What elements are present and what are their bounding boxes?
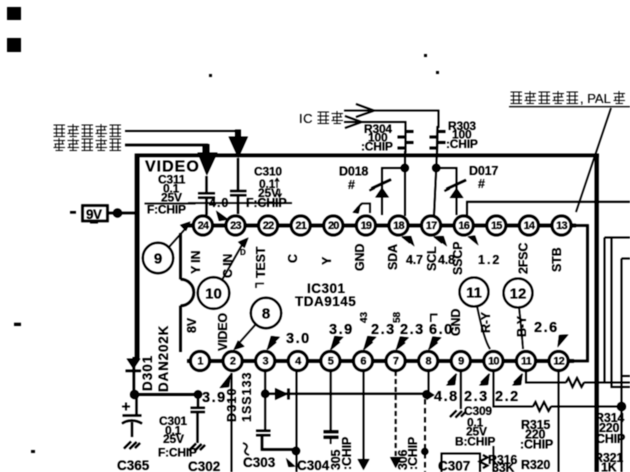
svg-text:12: 12 (553, 356, 564, 368)
svg-text:D: D (240, 248, 246, 257)
svg-text:20: 20 (328, 220, 339, 232)
svg-text:13: 13 (556, 220, 567, 232)
svg-text:2.3: 2.3 (464, 389, 489, 405)
svg-text:F:CHIP: F:CHIP (158, 446, 197, 460)
svg-text:2.3: 2.3 (371, 322, 396, 338)
svg-text:3.9: 3.9 (202, 390, 227, 406)
svg-text:D017: D017 (469, 164, 498, 178)
svg-text:8: 8 (262, 306, 270, 323)
svg-text:3: 3 (263, 356, 269, 368)
svg-text:12: 12 (510, 286, 527, 303)
svg-text:#: # (478, 177, 485, 191)
svg-text:2: 2 (230, 356, 236, 368)
svg-text:9: 9 (154, 251, 162, 268)
svg-text:10: 10 (488, 356, 499, 368)
svg-text:TEST: TEST (254, 246, 268, 278)
svg-text::CHIP: :CHIP (361, 140, 393, 154)
svg-text:SDA: SDA (386, 244, 400, 270)
svg-text:R-Y: R-Y (479, 311, 493, 333)
svg-text:D018: D018 (339, 165, 368, 179)
svg-text:14: 14 (524, 220, 536, 232)
svg-text:C365: C365 (117, 458, 150, 472)
svg-text:C IN: C IN (221, 254, 235, 278)
svg-text:Y IN: Y IN (189, 251, 203, 274)
svg-text:43: 43 (359, 311, 370, 323)
svg-text:, PAL: , PAL (580, 91, 611, 106)
svg-text:SSCP: SSCP (451, 242, 465, 275)
svg-text:1K: 1K (601, 461, 617, 472)
svg-text::CHIP: :CHIP (406, 437, 420, 470)
svg-text:6.0: 6.0 (429, 322, 454, 338)
svg-text:VIDEO: VIDEO (216, 313, 230, 351)
svg-text:9V: 9V (86, 207, 102, 222)
svg-text:16: 16 (458, 220, 469, 232)
svg-text:5: 5 (328, 356, 334, 368)
svg-text:3.9: 3.9 (329, 322, 354, 338)
svg-text:6: 6 (360, 356, 366, 368)
svg-text:25V: 25V (163, 432, 184, 446)
svg-text:F:CHIP: F:CHIP (147, 203, 186, 217)
svg-text:4.7: 4.7 (406, 253, 423, 267)
svg-text:17: 17 (426, 220, 437, 232)
svg-text:8V: 8V (185, 317, 199, 333)
svg-text:C303: C303 (243, 455, 276, 470)
svg-text:19: 19 (361, 220, 372, 232)
svg-text:#: # (348, 178, 355, 192)
svg-text:3.0: 3.0 (286, 331, 311, 347)
svg-text:33K: 33K (492, 461, 515, 472)
svg-text:R320: R320 (521, 458, 550, 472)
svg-text:SCL: SCL (425, 246, 439, 271)
svg-text:9: 9 (458, 356, 464, 368)
svg-text:22: 22 (263, 220, 274, 232)
svg-text::CHIP: :CHIP (446, 137, 478, 151)
svg-text:GND: GND (353, 244, 367, 271)
svg-text:24: 24 (198, 220, 210, 232)
svg-text:D301: D301 (140, 355, 155, 391)
svg-text:IC: IC (299, 111, 313, 126)
svg-text:4.8: 4.8 (434, 389, 459, 405)
svg-text:18: 18 (393, 220, 404, 232)
svg-text:B-Y: B-Y (515, 315, 529, 337)
svg-text:1.2: 1.2 (478, 253, 501, 267)
svg-text:2FSC: 2FSC (517, 243, 531, 274)
svg-text:15: 15 (491, 220, 502, 232)
svg-text:2.2: 2.2 (495, 389, 520, 405)
svg-text:21: 21 (295, 220, 306, 232)
svg-text:8: 8 (426, 356, 432, 368)
svg-text:TDA9145: TDA9145 (295, 294, 356, 309)
svg-text:B:CHIP: B:CHIP (455, 435, 495, 449)
svg-text:2.6: 2.6 (534, 320, 559, 336)
svg-text:C307: C307 (438, 459, 470, 472)
svg-text:1SS133: 1SS133 (240, 372, 254, 422)
svg-text:C304: C304 (297, 458, 330, 472)
svg-text::CHIP: :CHIP (520, 438, 553, 452)
svg-text:10: 10 (205, 286, 222, 303)
svg-text:Y: Y (320, 256, 334, 265)
svg-text:11: 11 (466, 285, 482, 302)
svg-text:STB: STB (550, 247, 564, 272)
svg-text:CHIP: CHIP (596, 432, 625, 446)
svg-text:1: 1 (197, 356, 203, 368)
svg-text:DAN202K: DAN202K (156, 325, 171, 392)
svg-text:F:CHIP: F:CHIP (246, 196, 286, 210)
svg-text:C: C (286, 254, 300, 263)
svg-text:7: 7 (393, 356, 399, 368)
svg-text:11: 11 (521, 356, 532, 368)
svg-text:2.3: 2.3 (400, 322, 425, 338)
svg-text::CHIP: :CHIP (340, 437, 354, 470)
svg-text:23: 23 (230, 220, 241, 232)
svg-text:D310: D310 (225, 387, 239, 422)
svg-text:C302: C302 (188, 459, 220, 472)
